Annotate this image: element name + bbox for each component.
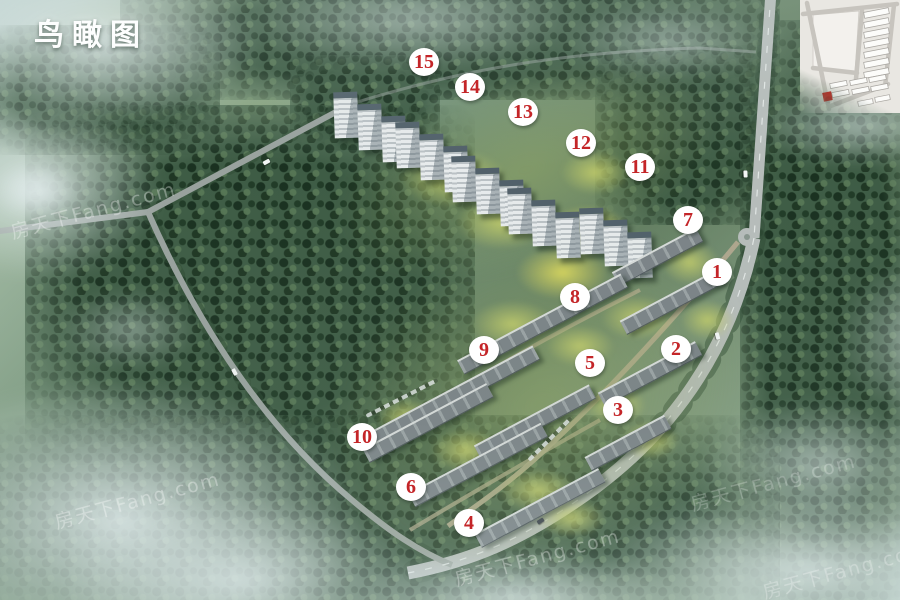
building-marker-label: 15 xyxy=(414,51,434,74)
building-marker-5[interactable]: 5 xyxy=(575,349,605,377)
building-marker-3[interactable]: 3 xyxy=(603,396,633,424)
building-marker-label: 10 xyxy=(352,426,372,449)
building-marker-8[interactable]: 8 xyxy=(560,283,590,311)
building-marker-label: 11 xyxy=(631,156,650,179)
building-marker-label: 5 xyxy=(585,352,595,375)
site-plan-minimap[interactable] xyxy=(800,0,900,113)
building-marker-4[interactable]: 4 xyxy=(454,509,484,537)
building-marker-label: 4 xyxy=(464,512,474,535)
building-marker-label: 3 xyxy=(613,399,623,422)
building-marker-14[interactable]: 14 xyxy=(455,73,485,101)
building-marker-label: 9 xyxy=(479,339,489,362)
building-marker-1[interactable]: 1 xyxy=(702,258,732,286)
minimap-location-marker xyxy=(822,91,833,102)
page-title: 鸟瞰图 xyxy=(34,10,148,54)
fog-cloud xyxy=(560,0,780,80)
minimap-graphic xyxy=(800,0,900,113)
building-marker-9[interactable]: 9 xyxy=(469,336,499,364)
building-marker-7[interactable]: 7 xyxy=(673,206,703,234)
fog-cloud xyxy=(840,260,900,420)
building-marker-label: 14 xyxy=(460,76,480,99)
building-marker-label: 13 xyxy=(513,101,533,124)
building-marker-11[interactable]: 11 xyxy=(625,153,655,181)
building-marker-label: 6 xyxy=(406,476,416,499)
building-marker-6[interactable]: 6 xyxy=(396,473,426,501)
building-marker-label: 2 xyxy=(671,338,681,361)
building-marker-2[interactable]: 2 xyxy=(661,335,691,363)
building-marker-13[interactable]: 13 xyxy=(508,98,538,126)
building-marker-label: 1 xyxy=(712,261,722,284)
building-marker-label: 12 xyxy=(571,132,591,155)
building-marker-15[interactable]: 15 xyxy=(409,48,439,76)
building-marker-label: 8 xyxy=(570,286,580,309)
building-marker-10[interactable]: 10 xyxy=(347,423,377,451)
building-marker-12[interactable]: 12 xyxy=(566,129,596,157)
fog-cloud xyxy=(60,290,200,370)
aerial-view-image: 房天下Fang.com 房天下Fang.com 房天下Fang.com 房天下F… xyxy=(0,0,900,600)
building-marker-label: 7 xyxy=(683,209,693,232)
